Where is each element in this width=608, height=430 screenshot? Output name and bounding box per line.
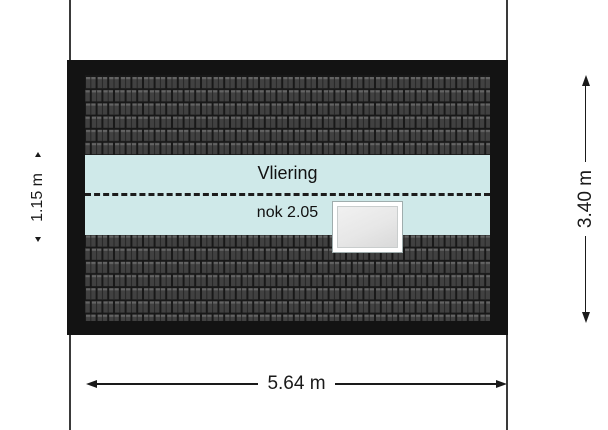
ridge-height-label: nok 2.05 [85, 203, 490, 222]
dimension-tick-top-icon [35, 152, 41, 157]
attic-band: Vliering nok 2.05 [85, 155, 490, 235]
dimension-line [585, 86, 587, 162]
ridge-dashed-line [85, 193, 490, 196]
dimension-line [335, 383, 496, 385]
floorplan-canvas: 1.15 m Vlieri [0, 0, 608, 430]
arrowhead-up-icon [582, 75, 590, 86]
dimension-line [585, 236, 587, 312]
room-label: Vliering [85, 163, 490, 183]
dimension-right: 3.40 m [577, 75, 594, 323]
arrowhead-left-icon [86, 380, 97, 388]
attic-plan: Vliering nok 2.05 [67, 60, 508, 335]
dimension-line [97, 383, 258, 385]
dimension-left: 1.15 m [26, 152, 50, 242]
dimension-right-label: 3.40 m [575, 162, 597, 236]
dimension-tick-bottom-icon [35, 237, 41, 242]
dimension-left-label: 1.15 m [29, 173, 47, 222]
skylight-glass [337, 206, 398, 248]
skylight-window [332, 201, 403, 253]
arrowhead-down-icon [582, 312, 590, 323]
arrowhead-right-icon [496, 380, 507, 388]
dimension-bottom: 5.64 m [86, 376, 507, 392]
dimension-bottom-label: 5.64 m [258, 373, 334, 395]
